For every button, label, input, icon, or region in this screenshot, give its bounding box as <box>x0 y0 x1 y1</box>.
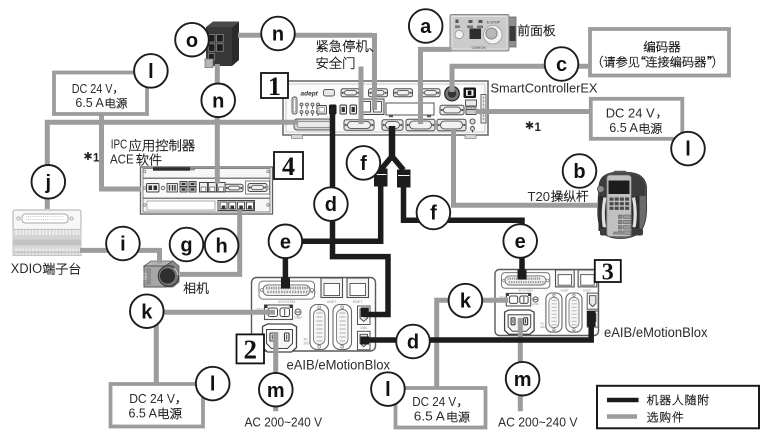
svg-text:j: j <box>45 172 52 194</box>
svg-text:6.5 A: 6.5 A <box>609 120 638 135</box>
svg-text:k: k <box>141 301 153 323</box>
svg-text:SmartControllerEX: SmartControllerEX <box>491 80 598 95</box>
svg-text:6.5 A: 6.5 A <box>75 96 104 110</box>
svg-text:1: 1 <box>535 122 542 134</box>
svg-text:e: e <box>515 231 526 253</box>
svg-text:a: a <box>420 16 432 38</box>
svg-text:3: 3 <box>602 260 614 286</box>
svg-text:T20: T20 <box>528 189 551 204</box>
svg-text:XNET: XNET <box>560 289 568 293</box>
svg-text:n: n <box>212 90 224 112</box>
svg-text:i: i <box>120 234 126 256</box>
svg-text:1: 1 <box>93 153 100 165</box>
svg-text:d: d <box>325 194 337 216</box>
svg-text:AC 200~240 V: AC 200~240 V <box>498 415 578 430</box>
svg-text:DC 24 V: DC 24 V <box>72 82 113 96</box>
svg-text:d: d <box>407 332 419 354</box>
svg-text:6.5 A: 6.5 A <box>414 409 445 424</box>
svg-text:o: o <box>186 30 198 52</box>
svg-text:IPC: IPC <box>111 137 128 152</box>
svg-text:m: m <box>514 369 532 391</box>
svg-text:SO: SO <box>143 273 149 280</box>
svg-text:XSYSTEM: XSYSTEM <box>278 300 295 304</box>
svg-text:c: c <box>556 54 567 76</box>
svg-text:XNET: XNET <box>327 300 337 304</box>
svg-text:1394: 1394 <box>360 326 367 330</box>
svg-text:GND: GND <box>532 302 540 306</box>
svg-text:XSYSTEM: XSYSTEM <box>518 289 533 293</box>
svg-text:ENET: ENET <box>583 289 591 293</box>
svg-text:l: l <box>210 374 216 396</box>
svg-text:f: f <box>360 153 367 175</box>
svg-text:e: e <box>280 231 291 253</box>
svg-text:ENET: ENET <box>353 300 363 304</box>
svg-text:h: h <box>215 235 227 257</box>
svg-text:ACE: ACE <box>110 152 134 167</box>
svg-text:AC 200~240 V: AC 200~240 V <box>245 415 323 430</box>
svg-text:6.5 A: 6.5 A <box>129 405 158 420</box>
svg-text:n: n <box>272 24 284 46</box>
svg-text:1: 1 <box>268 72 281 101</box>
svg-text:DC 24 V: DC 24 V <box>412 394 456 409</box>
svg-text:m: m <box>267 380 285 402</box>
svg-text:GND: GND <box>294 316 302 320</box>
svg-text:k: k <box>460 291 472 313</box>
svg-text:l: l <box>148 61 154 83</box>
svg-text:2: 2 <box>244 335 258 365</box>
svg-text:XDIO: XDIO <box>11 261 42 276</box>
svg-text:b: b <box>573 161 585 183</box>
svg-text:4: 4 <box>282 152 295 181</box>
svg-text:DC 24 V: DC 24 V <box>129 391 175 406</box>
svg-text:l: l <box>685 139 691 161</box>
svg-text:eAIB/eMotionBlox: eAIB/eMotionBlox <box>604 324 708 340</box>
svg-text:E-STOP: E-STOP <box>487 21 501 25</box>
svg-text:f: f <box>430 203 437 225</box>
svg-text:l: l <box>385 379 391 401</box>
svg-text:adept: adept <box>301 91 319 98</box>
svg-text:eAIB/eMotionBlox: eAIB/eMotionBlox <box>287 356 391 372</box>
svg-text:g: g <box>180 235 192 257</box>
svg-text:OMRON: OMRON <box>472 46 487 50</box>
svg-text:DC 24 V: DC 24 V <box>606 105 655 120</box>
